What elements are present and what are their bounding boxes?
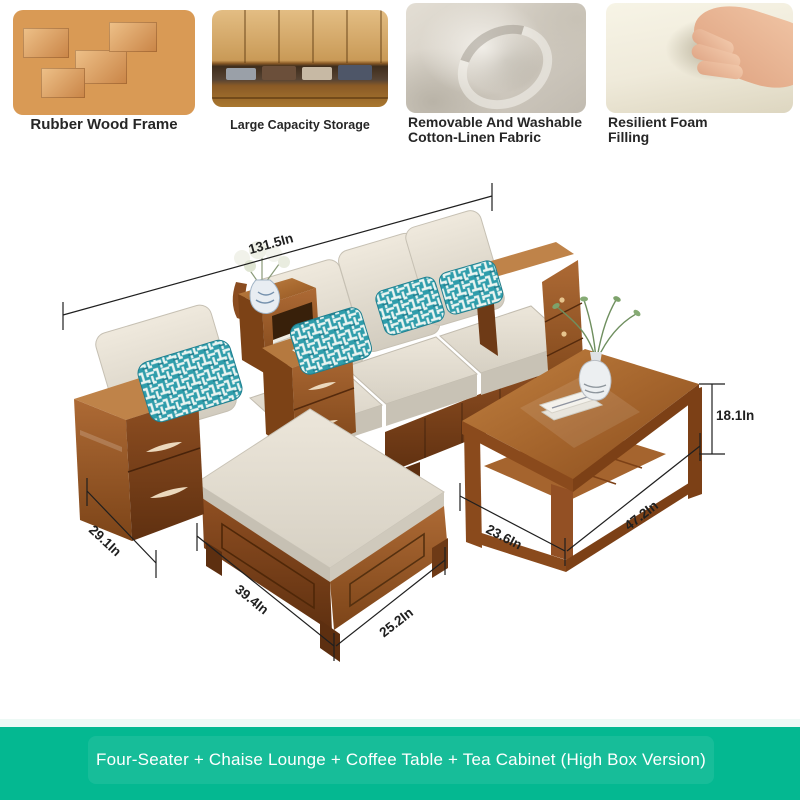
dimension-label-table-height: 18.1In [716,408,754,423]
table-leg [551,484,573,562]
vase-body [579,360,611,400]
configuration-banner: Four-Seater + Chaise Lounge + Coffee Tab… [0,727,800,800]
armrest-front [74,399,132,541]
leaf [612,295,621,303]
vase-body [250,280,280,313]
banner-text: Four-Seater + Chaise Lounge + Coffee Tab… [96,750,706,770]
dimension-table-height: 18.1In [699,384,754,454]
drawer-knob [561,331,566,336]
leaf [580,297,588,302]
sofa-set-illustration: 131.5In 18.1In 29.1In 39.4In [0,0,800,800]
flower [278,256,290,268]
banner-top-strip [0,719,800,727]
banner-inner-panel: Four-Seater + Chaise Lounge + Coffee Tab… [88,736,714,784]
product-infographic: Rubber Wood Frame Large Capacity Storage… [0,0,800,800]
drawer-knob [559,297,564,302]
